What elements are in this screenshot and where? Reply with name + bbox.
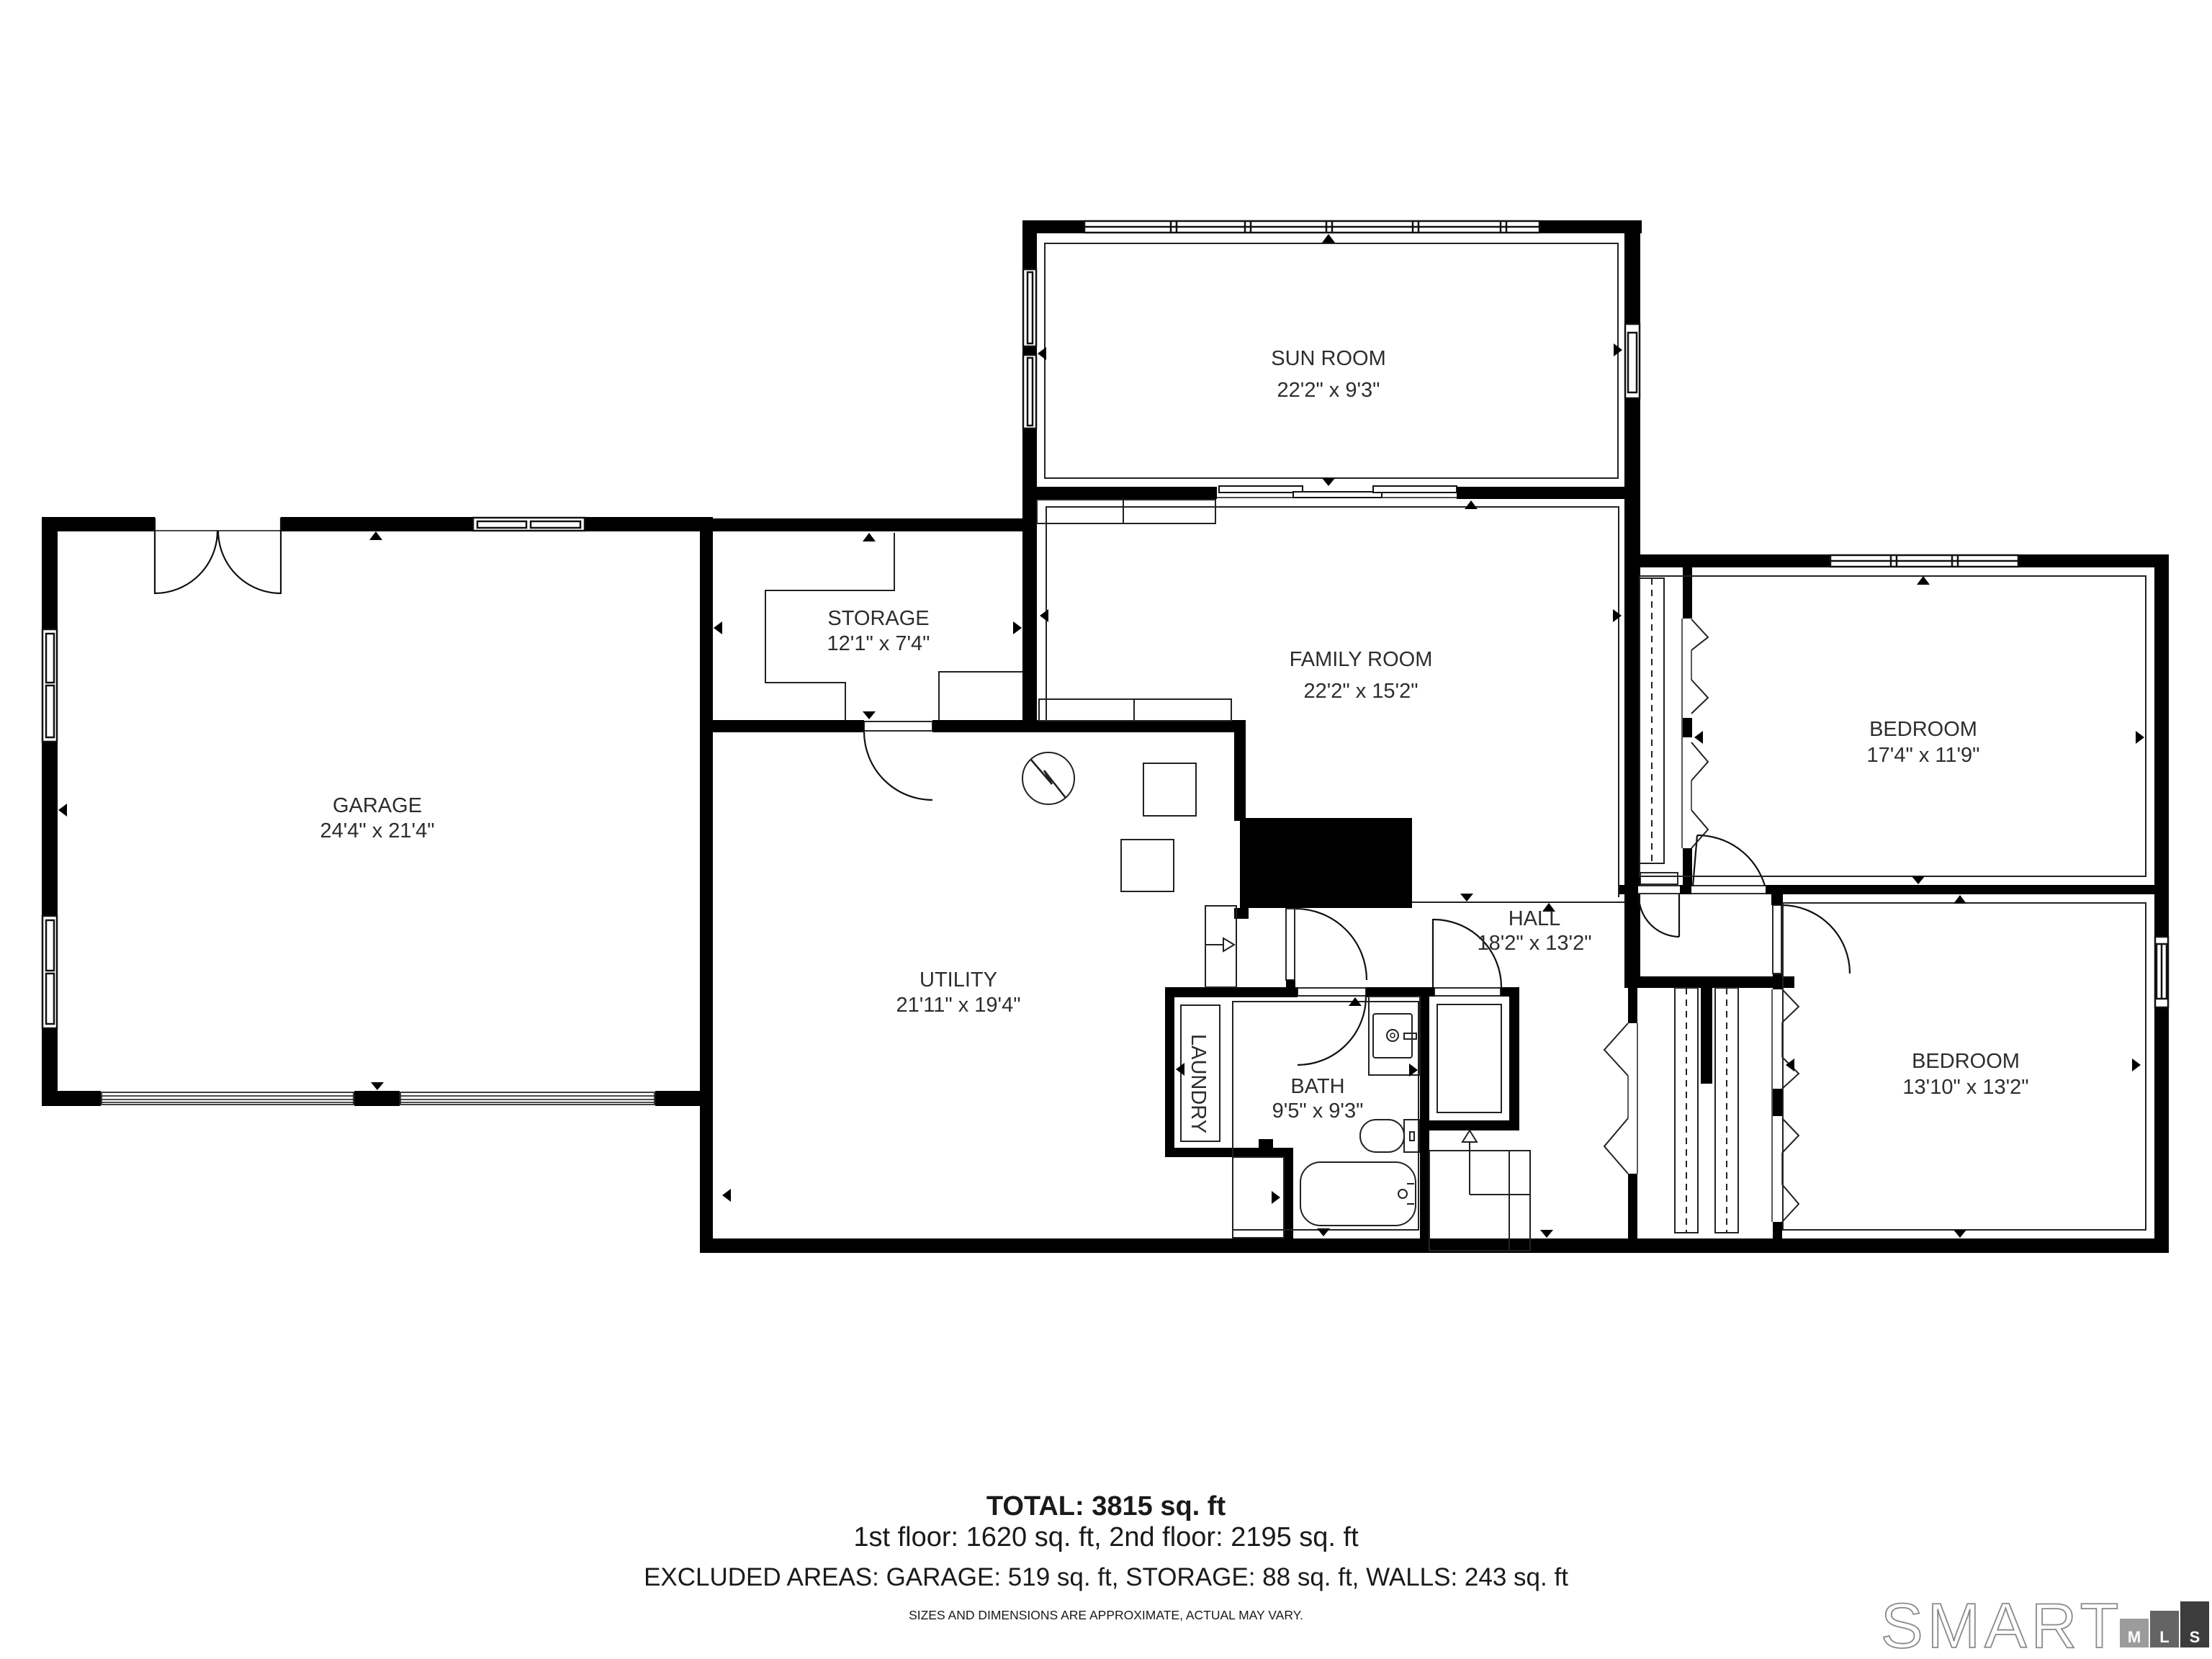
svg-text:12'1" x 7'4": 12'1" x 7'4"	[827, 632, 930, 655]
svg-text:BEDROOM: BEDROOM	[1869, 718, 1977, 741]
svg-text:21'11" x 19'4": 21'11" x 19'4"	[896, 994, 1020, 1017]
svg-text:1st floor: 1620 sq. ft, 2nd fl: 1st floor: 1620 sq. ft, 2nd floor: 2195 …	[853, 1522, 1359, 1552]
svg-text:GARAGE: GARAGE	[333, 794, 422, 817]
svg-text:STORAGE: STORAGE	[827, 607, 929, 630]
svg-text:22'2" x 9'3": 22'2" x 9'3"	[1277, 379, 1380, 402]
svg-text:BATH: BATH	[1290, 1075, 1344, 1098]
svg-text:18'2" x 13'2": 18'2" x 13'2"	[1477, 932, 1591, 955]
svg-text:SUN ROOM: SUN ROOM	[1271, 347, 1386, 370]
svg-text:22'2" x 15'2": 22'2" x 15'2"	[1303, 680, 1418, 703]
svg-text:M: M	[2128, 1628, 2141, 1646]
svg-text:SIZES AND DIMENSIONS ARE APPRO: SIZES AND DIMENSIONS ARE APPROXIMATE, AC…	[909, 1608, 1303, 1622]
svg-text:L: L	[2159, 1628, 2169, 1646]
svg-text:BEDROOM: BEDROOM	[1912, 1050, 2020, 1073]
svg-text:HALL: HALL	[1509, 907, 1561, 930]
svg-text:24'4" x 21'4": 24'4" x 21'4"	[320, 819, 434, 842]
svg-text:9'5" x 9'3": 9'5" x 9'3"	[1272, 1100, 1364, 1123]
svg-text:S: S	[2190, 1628, 2200, 1646]
svg-text:FAMILY ROOM: FAMILY ROOM	[1290, 648, 1433, 671]
svg-text:13'10" x 13'2": 13'10" x 13'2"	[1902, 1076, 2028, 1099]
svg-text:UTILITY: UTILITY	[920, 968, 997, 992]
svg-text:TOTAL: 3815 sq. ft: TOTAL: 3815 sq. ft	[986, 1491, 1226, 1521]
svg-text:EXCLUDED AREAS: GARAGE: 519 sq: EXCLUDED AREAS: GARAGE: 519 sq. ft, STOR…	[644, 1563, 1568, 1591]
svg-text:LAUNDRY: LAUNDRY	[1187, 1034, 1210, 1133]
svg-text:17'4" x 11'9": 17'4" x 11'9"	[1867, 744, 1980, 767]
svg-text:SMART: SMART	[1881, 1590, 2123, 1659]
